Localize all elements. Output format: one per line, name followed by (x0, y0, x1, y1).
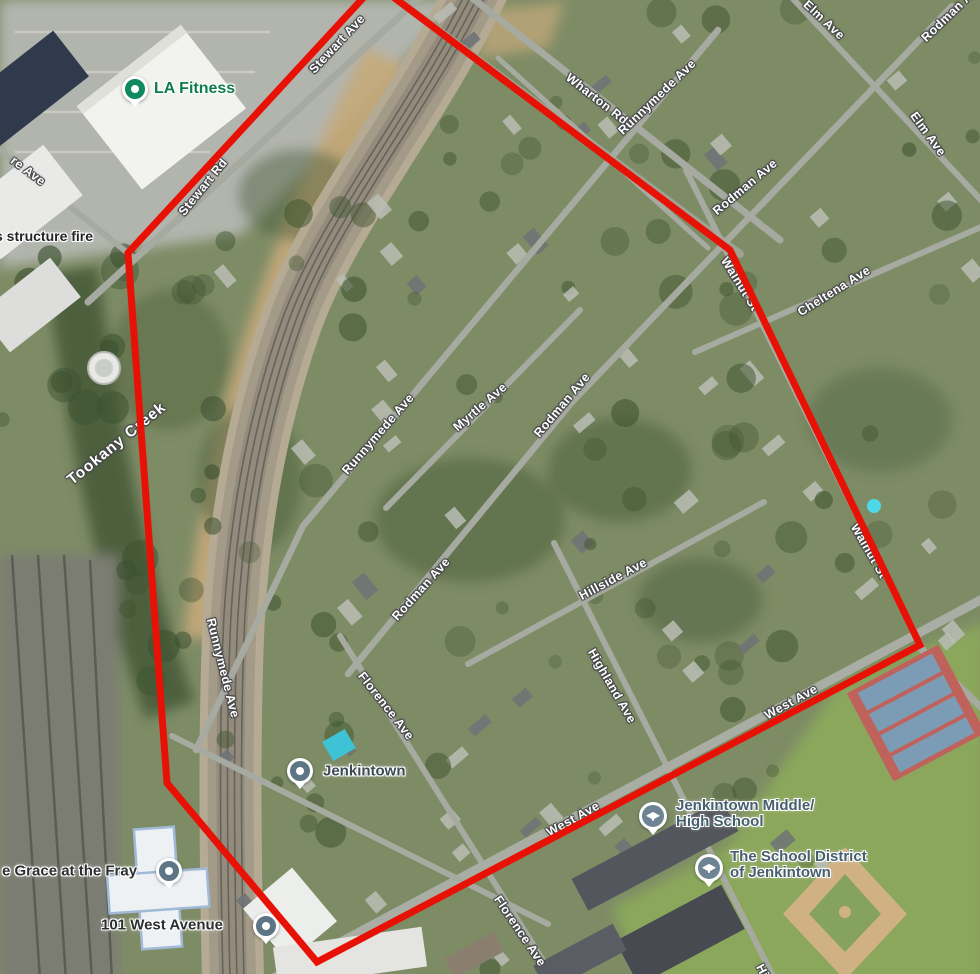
grace-at-the-fray-pin[interactable] (156, 858, 182, 884)
101-west-avenue-label[interactable]: 101 West Avenue (101, 917, 223, 934)
middle-high-school-label[interactable]: Jenkintown Middle/ High School (676, 798, 814, 830)
la-fitness-pin[interactable] (122, 76, 148, 102)
middle-high-school-icon[interactable] (639, 802, 667, 830)
middle-high-line2: High School (676, 814, 814, 830)
school-district-label[interactable]: The School District of Jenkintown (730, 849, 867, 881)
district-line2: of Jenkintown (730, 865, 867, 881)
graduation-cap-icon (645, 810, 661, 822)
swimming-pool (867, 499, 881, 513)
terrain-layer (0, 0, 980, 974)
satellite-map[interactable]: Wharton Rd Stewart Rd Stewart Ave re Ave… (0, 0, 980, 974)
grace-at-the-fray-label[interactable]: e Grace at the Fray (2, 863, 137, 880)
la-fitness-label[interactable]: LA Fitness (154, 80, 235, 98)
101-west-avenue-pin[interactable] (253, 913, 279, 939)
graduation-cap-icon (701, 862, 717, 874)
structure-fire-label[interactable]: s structure fire (0, 228, 93, 244)
school-district-icon[interactable] (695, 854, 723, 882)
district-line1: The School District (730, 849, 867, 865)
jenkintown-label[interactable]: Jenkintown (323, 763, 406, 780)
jenkintown-pin[interactable] (287, 758, 313, 784)
middle-high-line1: Jenkintown Middle/ (676, 798, 814, 814)
